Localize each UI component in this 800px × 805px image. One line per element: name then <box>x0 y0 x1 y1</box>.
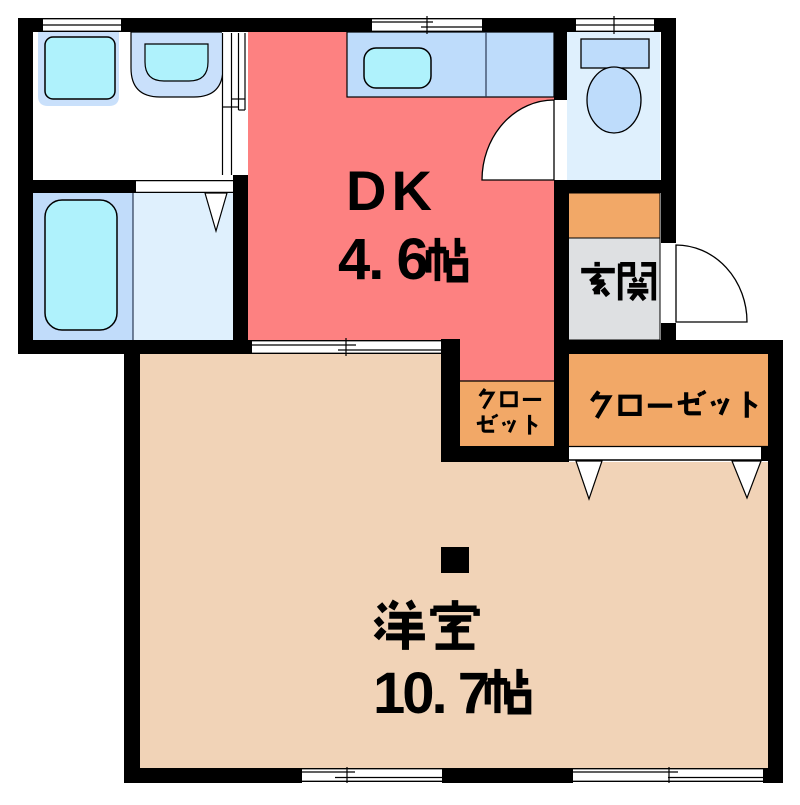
svg-text:4. 6: 4. 6 <box>338 227 427 292</box>
svg-text:10. 7: 10. 7 <box>373 661 488 726</box>
svg-text:DK: DK <box>346 159 437 222</box>
